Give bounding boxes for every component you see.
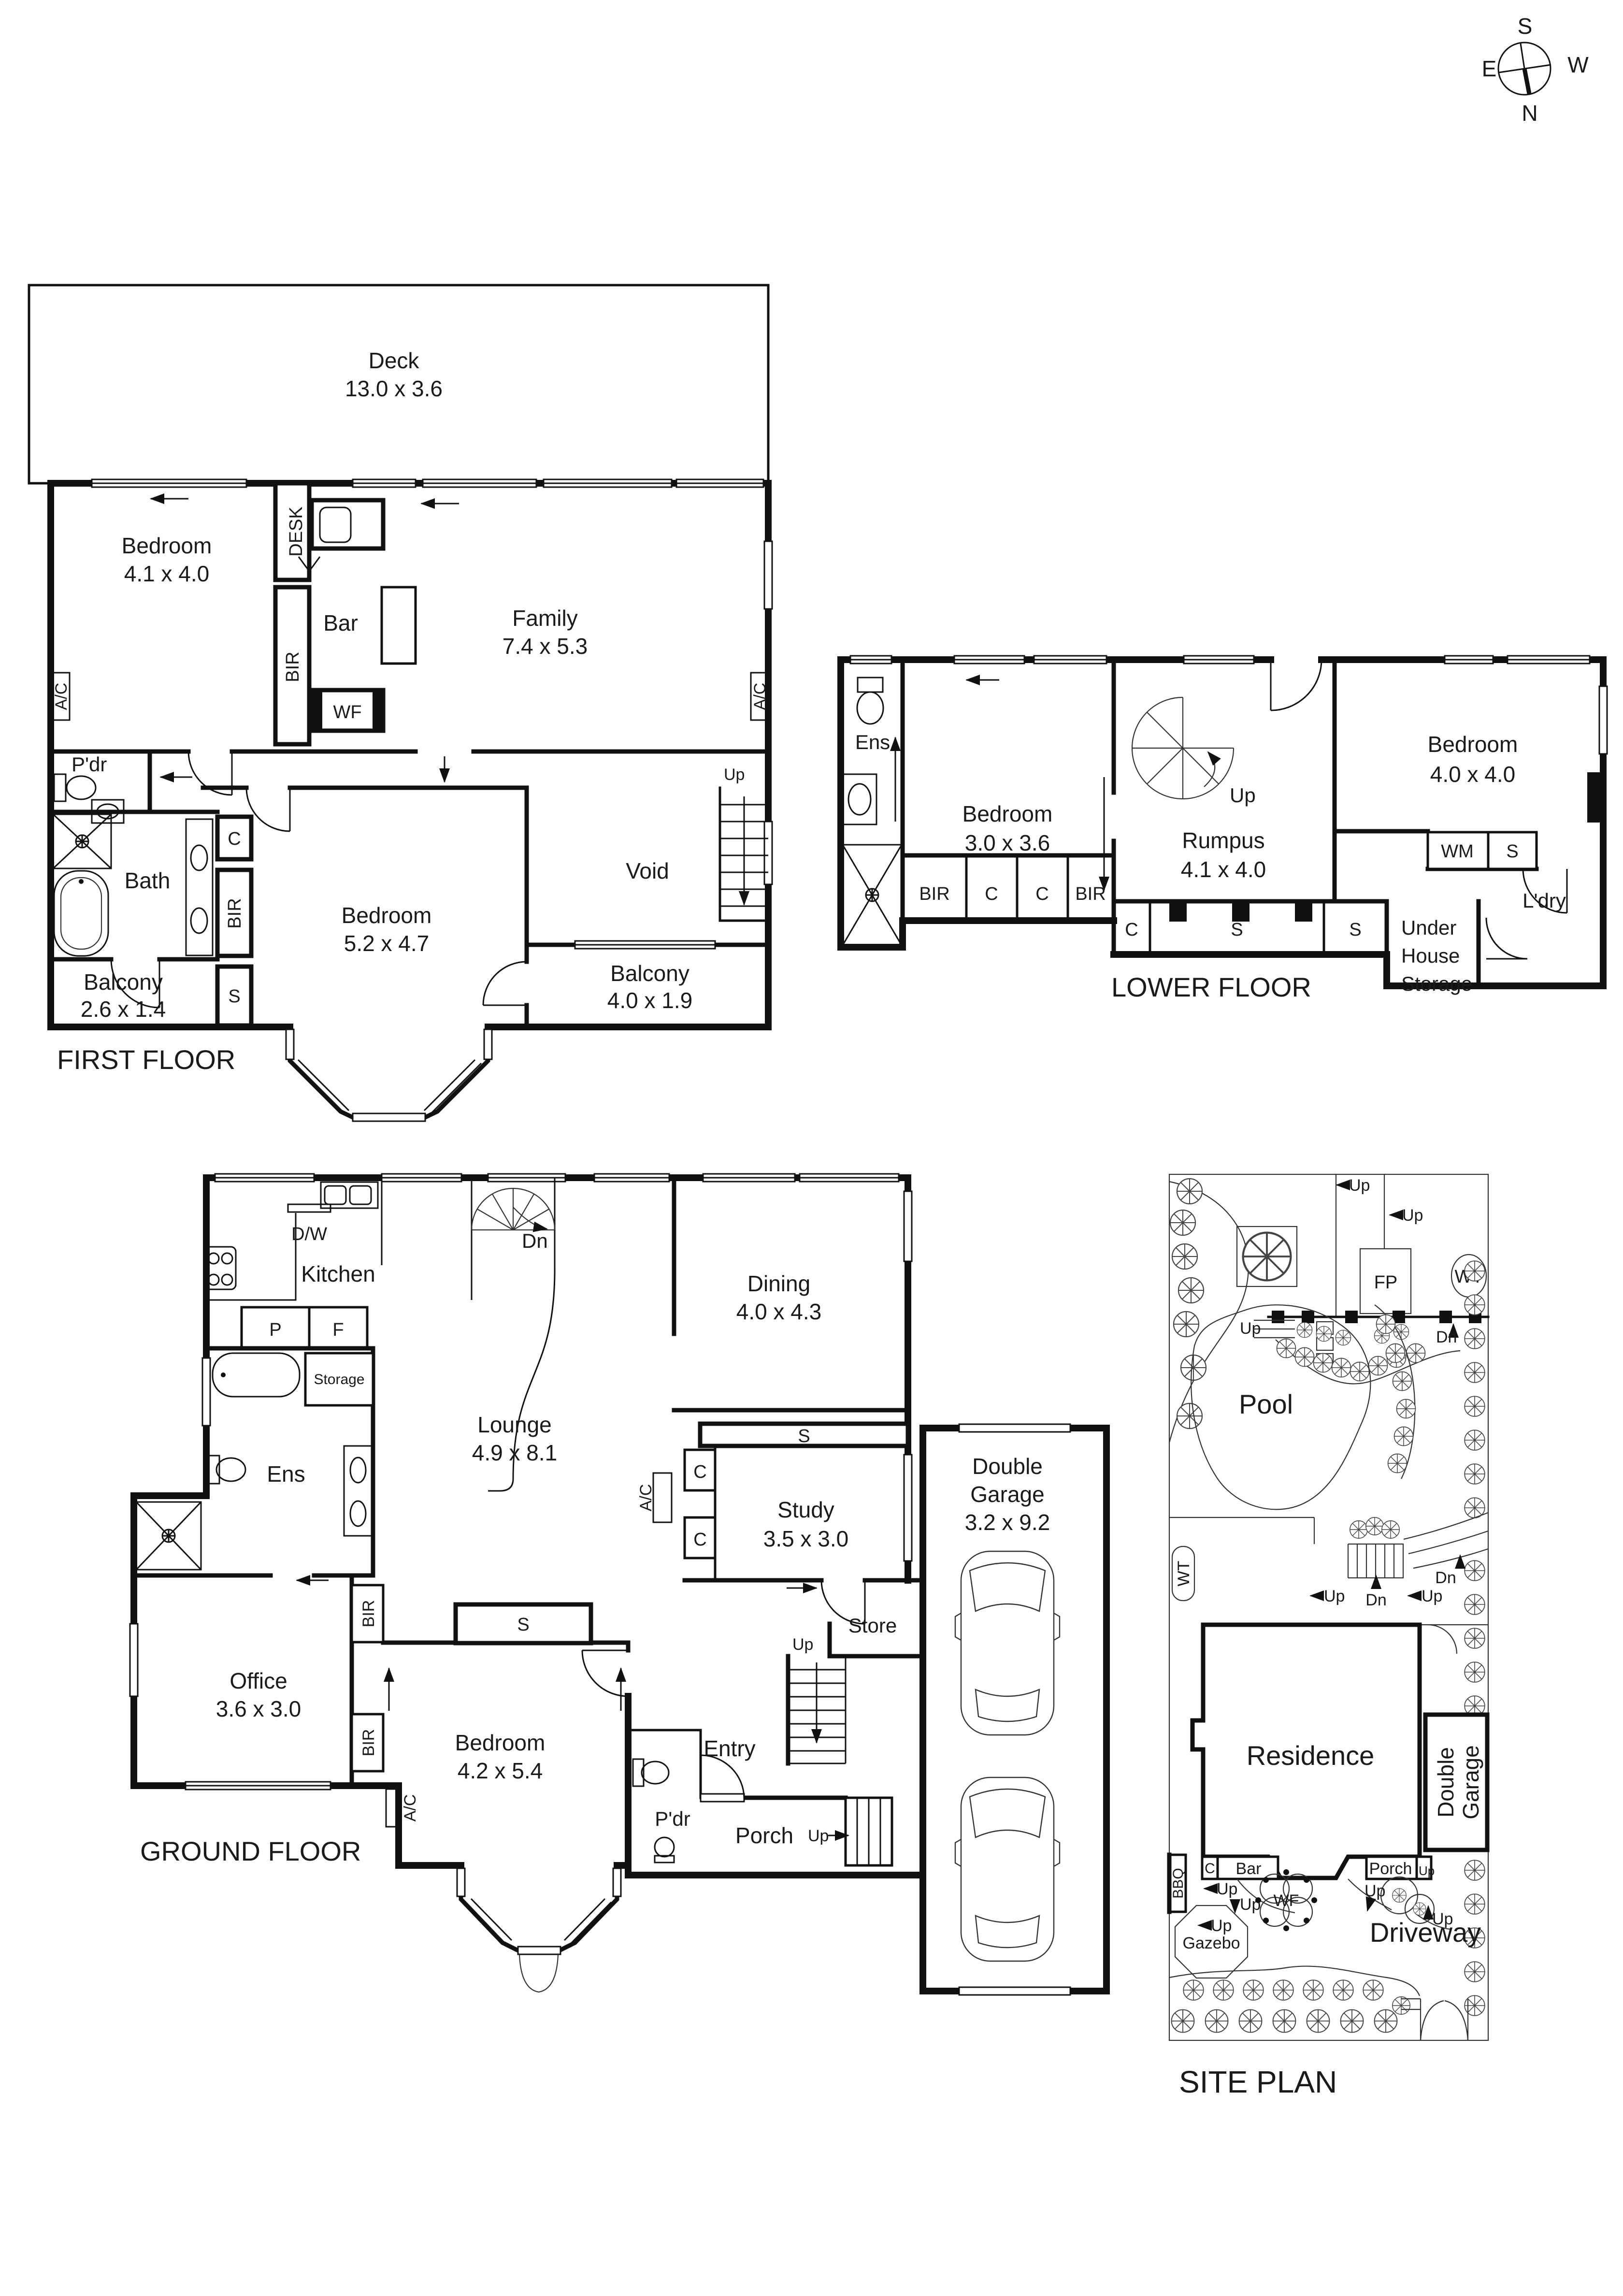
wf-label: WF: [333, 702, 361, 722]
study-dim: 3.5 x 3.0: [763, 1526, 848, 1551]
kitchen-label: Kitchen: [301, 1261, 375, 1286]
gf-pdr-label: P'dr: [655, 1807, 690, 1830]
lower-floor-title: LOWER FLOOR: [1111, 972, 1311, 1002]
lower-ens-fixtures: [843, 678, 902, 945]
up-label: Up: [1364, 1882, 1385, 1900]
lf-bedroom2-label: Bedroom: [1428, 732, 1518, 757]
dining-dim: 4.0 x 4.3: [736, 1299, 821, 1324]
c-label: C: [1125, 920, 1138, 940]
bir-label: BIR: [919, 884, 949, 904]
laundry-label: L'dry: [1522, 889, 1566, 912]
ens-label: Ens: [855, 731, 890, 753]
up-label: Up: [1419, 1863, 1435, 1878]
gf-ens-label: Ens: [267, 1461, 305, 1487]
gf-bedroom-label: Bedroom: [455, 1730, 546, 1755]
car-2: [955, 1777, 1060, 1961]
office-label: Office: [230, 1668, 287, 1693]
up-label: Up: [1349, 1176, 1370, 1195]
balcony1-dim: 2.6 x 1.4: [81, 996, 166, 1022]
up-label: Up: [724, 765, 745, 784]
c-label: C: [1035, 884, 1048, 904]
ac-bed-label: A/C: [401, 1794, 419, 1822]
family-dim: 7.4 x 5.3: [503, 634, 588, 659]
s-closet-label: S: [228, 986, 240, 1007]
site-garage-label1: Double: [1433, 1747, 1458, 1818]
powder-room-fixtures: [54, 774, 124, 823]
dn-label: Dn: [1365, 1591, 1386, 1609]
up-label: Up: [1217, 1880, 1237, 1898]
study-s-label: S: [798, 1426, 810, 1446]
gazebo-label: Gazebo: [1182, 1934, 1240, 1952]
fp-label: FP: [1374, 1272, 1398, 1293]
wm-label: WM: [1441, 841, 1474, 862]
up-label: Up: [1422, 1587, 1442, 1605]
up-label: Up: [792, 1635, 813, 1654]
driveway-gate: [1401, 1999, 1468, 2040]
garage-label1: Double: [972, 1454, 1043, 1479]
s-label: S: [1349, 920, 1361, 940]
ground-floor-title: GROUND FLOOR: [140, 1836, 361, 1866]
s-label: S: [1231, 920, 1243, 940]
up-label: Up: [1240, 1319, 1261, 1338]
rumpus-dim: 4.1 x 4.0: [1181, 857, 1266, 882]
c-label: C: [693, 1530, 706, 1550]
garage-label2: Garage: [970, 1482, 1044, 1507]
bar-label: Bar: [323, 610, 358, 635]
ground-floor-plan: D/W Kitchen P F Storage Ens Dn S C C A/C…: [130, 1174, 1106, 1995]
ac-left-label: A/C: [52, 683, 71, 710]
pool-label: Pool: [1239, 1389, 1293, 1419]
bedroom2-dim: 5.2 x 4.7: [344, 931, 429, 956]
dining-label: Dining: [747, 1271, 810, 1296]
bir-label: BIR: [283, 651, 303, 682]
up-label: Up: [808, 1827, 829, 1845]
deck-dim: 13.0 x 3.6: [345, 376, 443, 401]
deck-label: Deck: [369, 348, 420, 373]
balcony1-label: Balcony: [84, 969, 163, 995]
lf-bedroom2-dim: 4.0 x 4.0: [1430, 762, 1515, 787]
store-label: Store: [848, 1614, 897, 1637]
spiral-stair: Up: [1132, 697, 1256, 807]
lf-bedroom1-label: Bedroom: [962, 801, 1053, 826]
residence-label: Residence: [1247, 1740, 1375, 1771]
study-label: Study: [777, 1497, 834, 1522]
first-floor-title: FIRST FLOOR: [57, 1044, 235, 1075]
driveway-label: Driveway: [1370, 1917, 1481, 1948]
lounge-dim: 4.9 x 8.1: [472, 1440, 557, 1465]
bir-label: BIR: [1075, 884, 1106, 904]
storage-label: Storage: [314, 1372, 364, 1387]
office-dim: 3.6 x 3.0: [216, 1696, 301, 1721]
lf-bedroom1-dim: 3.0 x 3.6: [965, 830, 1050, 855]
dn-label: Dn: [1435, 1569, 1456, 1587]
pdr-label: P'dr: [72, 753, 107, 776]
dn-label: Dn: [1436, 1328, 1457, 1346]
dn-label: Dn: [522, 1229, 548, 1252]
site-bar-label: Bar: [1236, 1860, 1262, 1878]
desk-label: DESK: [286, 506, 306, 556]
site-plan: Up Up FP WT Up Dn Pool WT Dn Dn U: [1169, 1174, 1488, 2099]
ac-study-label: A/C: [637, 1484, 655, 1512]
floorplan-page: S N E W Deck 13.0 x 3.6 DESK BIR: [0, 0, 1623, 2296]
lounge-label: Lounge: [477, 1412, 552, 1437]
c-label: C: [693, 1462, 706, 1482]
bedroom1-label: Bedroom: [122, 533, 212, 558]
c-label: C: [985, 884, 998, 904]
up-label: Up: [1324, 1587, 1345, 1605]
vanity: [186, 819, 213, 955]
up-label: Up: [1211, 1917, 1232, 1935]
site-porch-label: Porch: [1369, 1860, 1412, 1878]
bedroom2-label: Bedroom: [342, 903, 432, 928]
balcony2-label: Balcony: [610, 961, 689, 986]
c-closet-label: C: [228, 829, 241, 849]
lower-floor-plan: WM S Up Ens Bedroom 3.0 x 3.6 Rumpus 4.1…: [841, 656, 1607, 1002]
compass-n: N: [1522, 101, 1537, 126]
bedroom1-dim: 4.1 x 4.0: [124, 561, 209, 586]
s-bed-label: S: [517, 1615, 529, 1635]
bbq-label: BBQ: [1170, 1868, 1186, 1898]
fridge-label: F: [332, 1320, 344, 1340]
up-label: Up: [1230, 784, 1256, 807]
site-c-label: C: [1205, 1861, 1215, 1877]
rumpus-label: Rumpus: [1182, 828, 1264, 853]
up-label: Up: [1402, 1206, 1423, 1225]
uhs-line2: House: [1401, 944, 1460, 967]
first-floor-plan: Deck 13.0 x 3.6 DESK BIR C: [29, 285, 772, 1121]
uhs-line3: Storage: [1401, 972, 1472, 995]
family-label: Family: [512, 606, 577, 631]
gf-bedroom-dim: 4.2 x 5.4: [458, 1758, 543, 1783]
uhs-line1: Under: [1401, 916, 1456, 939]
pantry-label: P: [269, 1320, 281, 1340]
bath-label: Bath: [125, 868, 171, 893]
car-1: [955, 1551, 1060, 1735]
first-floor-stairs: Up: [720, 765, 768, 921]
balcony2-dim: 4.0 x 1.9: [607, 988, 692, 1013]
entry-label: Entry: [704, 1736, 755, 1761]
ac-right-label: A/C: [751, 683, 769, 710]
bir-label: BIR: [359, 1729, 378, 1757]
bir-label: BIR: [359, 1600, 378, 1628]
bir2-label: BIR: [225, 898, 245, 928]
wt-label: WT: [1175, 1561, 1193, 1587]
s-wm-label: S: [1506, 841, 1518, 862]
void-label: Void: [626, 858, 669, 883]
garage-dim: 3.2 x 9.2: [965, 1510, 1050, 1535]
floorplan-drawing: S N E W Deck 13.0 x 3.6 DESK BIR: [0, 0, 1623, 2296]
site-garage-label2: Garage: [1458, 1745, 1483, 1819]
wf-label: WF: [1274, 1892, 1299, 1910]
dw-label: D/W: [291, 1224, 327, 1244]
compass-rose: S N E W: [1482, 14, 1589, 126]
site-steps: Dn: [1348, 1544, 1404, 1609]
site-plan-title: SITE PLAN: [1179, 2065, 1337, 2099]
porch-label: Porch: [735, 1823, 793, 1848]
compass-w: W: [1567, 52, 1589, 77]
compass-e: E: [1482, 56, 1497, 81]
compass-s: S: [1518, 14, 1533, 39]
